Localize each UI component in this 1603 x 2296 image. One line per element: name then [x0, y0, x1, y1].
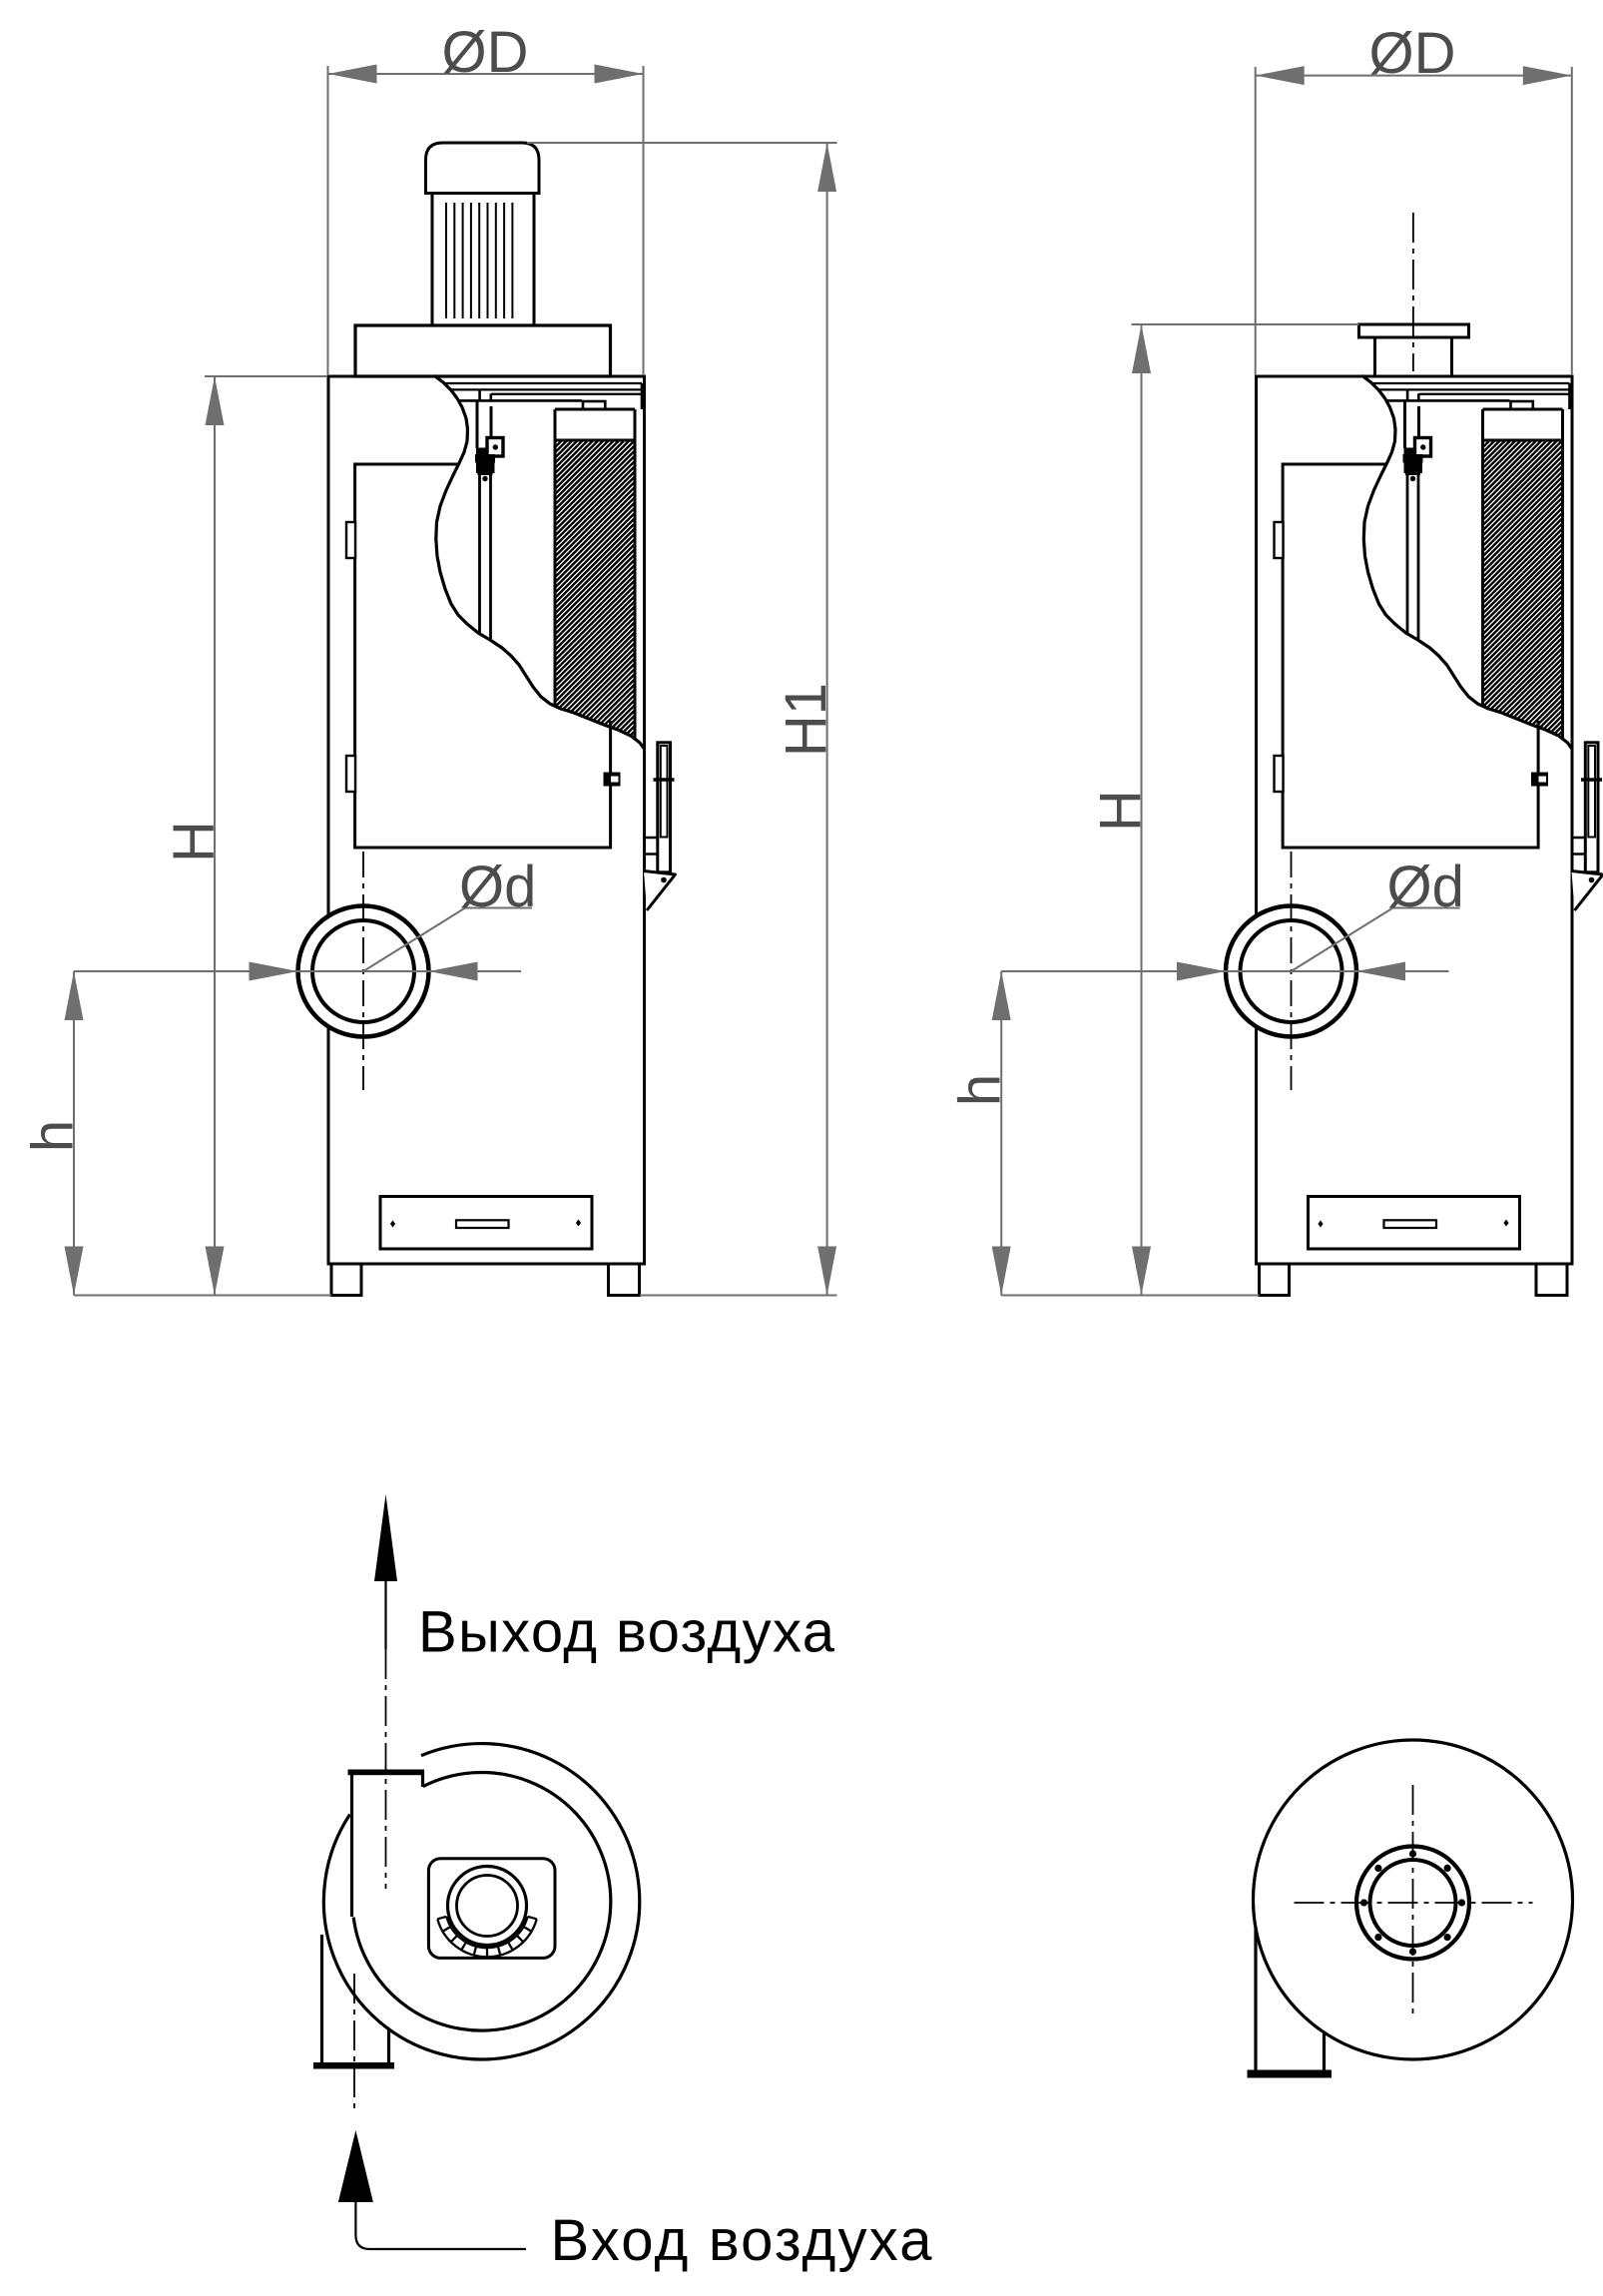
svg-text:H: H	[162, 821, 227, 862]
svg-text:h: h	[948, 1074, 1013, 1106]
svg-text:Выход воздуха: Выход воздуха	[418, 1600, 835, 1665]
svg-text:ØD: ØD	[1369, 21, 1456, 86]
svg-text:Вход воздуха: Вход воздуха	[551, 2208, 934, 2273]
svg-text:H: H	[1088, 790, 1153, 832]
svg-text:ØD: ØD	[442, 20, 529, 85]
svg-text:Ød: Ød	[459, 855, 536, 919]
svg-text:H1: H1	[774, 683, 838, 757]
svg-text:Ød: Ød	[1387, 855, 1464, 919]
svg-text:h: h	[21, 1120, 86, 1152]
